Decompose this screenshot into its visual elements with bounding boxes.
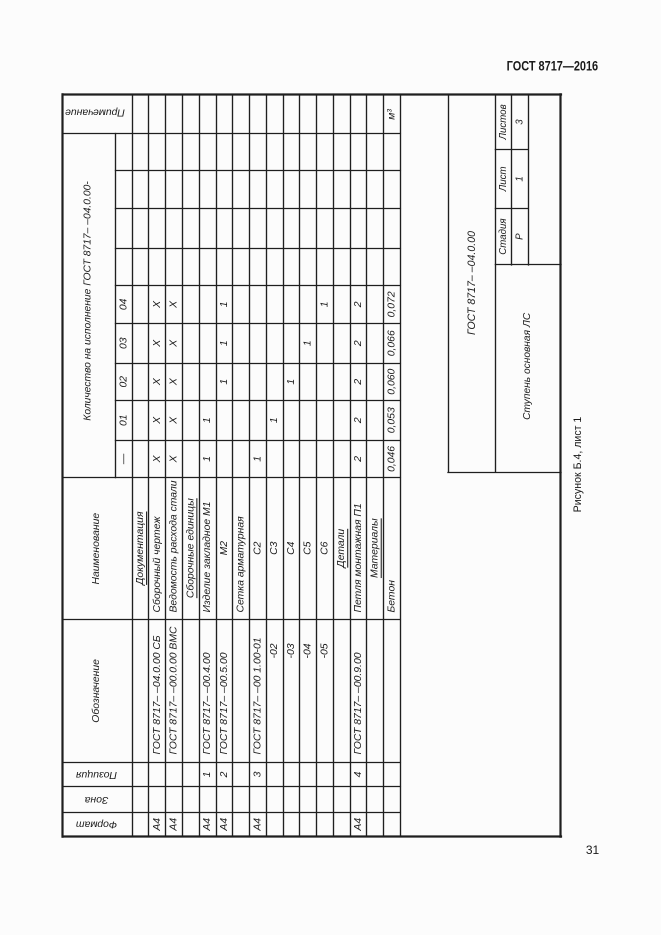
svg-text:м³: м³ — [386, 109, 397, 120]
svg-text:Сборочные единицы: Сборочные единицы — [184, 498, 196, 598]
svg-text:01: 01 — [118, 414, 129, 426]
svg-text:А4: А4 — [353, 818, 364, 832]
svg-text:Формат: Формат — [76, 819, 118, 830]
svg-text:04: 04 — [118, 298, 129, 310]
svg-text:03: 03 — [118, 337, 129, 349]
svg-text:Х: Х — [169, 300, 180, 309]
svg-text:Х: Х — [152, 454, 163, 463]
svg-text:1: 1 — [514, 176, 525, 181]
svg-text:1: 1 — [319, 301, 330, 307]
svg-text:Сетка арматурная: Сетка арматурная — [236, 516, 247, 613]
svg-text:0,060: 0,060 — [386, 368, 397, 394]
svg-text:1: 1 — [202, 456, 213, 462]
svg-text:Материалы: Материалы — [370, 518, 381, 578]
svg-text:Количество на исполнение ГОСТ: Количество на исполнение ГОСТ 8717– –04.… — [83, 181, 94, 421]
svg-text:С2: С2 — [252, 541, 263, 555]
svg-text:Бетон: Бетон — [386, 580, 397, 613]
svg-text:2: 2 — [353, 456, 364, 463]
svg-text:Рисунок Б.4, лист 1: Рисунок Б.4, лист 1 — [572, 417, 584, 513]
svg-text:1: 1 — [219, 340, 230, 346]
svg-text:Листов: Листов — [498, 104, 509, 140]
svg-text:ГОСТ 8717– –00.0.00 ВМС: ГОСТ 8717– –00.0.00 ВМС — [169, 626, 180, 754]
svg-text:2: 2 — [219, 771, 230, 778]
svg-text:ГОСТ 8717– –00.5.00: ГОСТ 8717– –00.5.00 — [219, 652, 230, 754]
svg-text:—: — — [118, 453, 129, 465]
svg-text:1: 1 — [219, 379, 230, 385]
svg-text:1: 1 — [202, 772, 213, 778]
svg-text:3: 3 — [252, 771, 263, 777]
svg-text:1: 1 — [303, 340, 314, 346]
svg-text:ГОСТ 8717– –04.0.00: ГОСТ 8717– –04.0.00 — [466, 231, 478, 335]
svg-text:С4: С4 — [286, 541, 297, 555]
svg-text:1: 1 — [269, 417, 280, 423]
svg-text:2: 2 — [353, 301, 364, 308]
svg-text:А4: А4 — [169, 818, 180, 832]
svg-text:1: 1 — [202, 417, 213, 423]
svg-text:-04: -04 — [303, 643, 314, 658]
svg-text:Х: Х — [169, 454, 180, 463]
svg-text:Х: Х — [169, 416, 180, 425]
svg-text:Зона: Зона — [84, 794, 108, 805]
svg-text:А4: А4 — [152, 818, 163, 832]
svg-text:0,066: 0,066 — [386, 330, 397, 356]
svg-text:Стадия: Стадия — [498, 218, 509, 254]
svg-text:ГОСТ 8717– –00.4.00: ГОСТ 8717– –00.4.00 — [202, 652, 213, 754]
svg-text:02: 02 — [118, 376, 129, 388]
svg-text:Х: Х — [152, 416, 163, 425]
svg-text:0,072: 0,072 — [386, 291, 397, 317]
svg-text:0,053: 0,053 — [386, 407, 397, 433]
svg-text:ГОСТ 8717—2016: ГОСТ 8717—2016 — [507, 59, 599, 75]
svg-text:С6: С6 — [319, 541, 330, 555]
svg-text:С5: С5 — [303, 541, 314, 555]
svg-text:ГОСТ 8717– –00 1.00-01: ГОСТ 8717– –00 1.00-01 — [252, 637, 263, 754]
svg-text:-02: -02 — [269, 643, 280, 658]
svg-text:Детали: Детали — [336, 529, 347, 569]
svg-text:2: 2 — [353, 417, 364, 424]
svg-text:А4: А4 — [202, 818, 213, 832]
svg-text:0,046: 0,046 — [386, 446, 397, 472]
svg-text:А4: А4 — [252, 818, 263, 832]
svg-text:Ведомость расхода стали: Ведомость расхода стали — [169, 480, 180, 612]
svg-text:3: 3 — [514, 119, 525, 125]
svg-text:Х: Х — [169, 377, 180, 386]
svg-text:Изделие закладное М1: Изделие закладное М1 — [202, 501, 213, 612]
svg-text:Позиция: Позиция — [76, 769, 118, 780]
svg-text:31: 31 — [586, 843, 600, 857]
svg-text:Документация: Документация — [135, 511, 146, 586]
svg-text:С3: С3 — [269, 541, 280, 555]
svg-text:1: 1 — [252, 456, 263, 462]
svg-text:2: 2 — [353, 379, 364, 386]
svg-text:Х: Х — [152, 339, 163, 348]
svg-text:А4: А4 — [219, 818, 230, 832]
svg-text:2: 2 — [353, 340, 364, 347]
svg-text:Примечание: Примечание — [65, 106, 125, 117]
svg-text:Х: Х — [169, 339, 180, 348]
svg-text:4: 4 — [353, 771, 364, 777]
svg-text:Наименование: Наименование — [91, 513, 102, 585]
svg-text:1: 1 — [219, 301, 230, 307]
svg-text:Обозначение: Обозначение — [90, 659, 102, 723]
svg-text:1: 1 — [286, 379, 297, 385]
svg-text:Х: Х — [152, 377, 163, 386]
svg-text:-03: -03 — [286, 643, 297, 658]
svg-text:Петля монтажная П1: Петля монтажная П1 — [353, 503, 364, 612]
svg-text:Лист: Лист — [498, 166, 509, 192]
svg-text:Х: Х — [152, 300, 163, 309]
svg-text:Р: Р — [514, 233, 525, 240]
svg-text:ГОСТ 8717– –00.9.00: ГОСТ 8717– –00.9.00 — [353, 652, 364, 754]
svg-text:Ступень основная ЛС: Ступень основная ЛС — [522, 312, 533, 420]
svg-text:-05: -05 — [319, 643, 330, 658]
svg-text:М2: М2 — [219, 541, 230, 556]
svg-text:Сборочный чертеж: Сборочный чертеж — [151, 516, 163, 613]
svg-text:ГОСТ 8717– –04.0.00 СБ: ГОСТ 8717– –04.0.00 СБ — [152, 635, 163, 754]
